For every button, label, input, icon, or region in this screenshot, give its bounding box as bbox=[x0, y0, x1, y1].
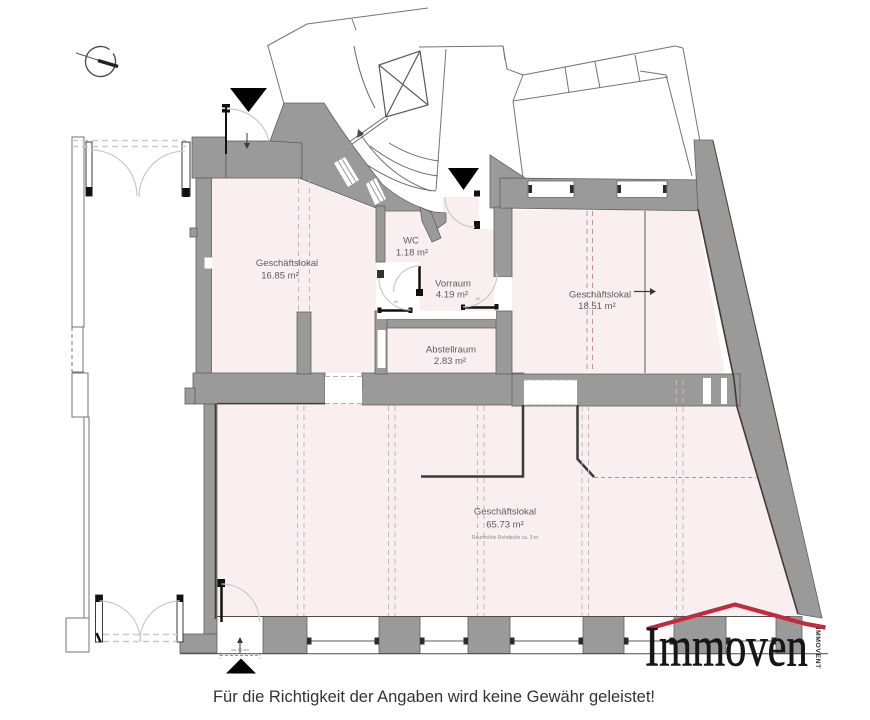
svg-text:ca. 90 cm: ca. 90 cm bbox=[231, 647, 249, 652]
svg-text:1.18 m²: 1.18 m² bbox=[396, 248, 428, 259]
svg-text:80: 80 bbox=[476, 296, 481, 301]
svg-text:80: 80 bbox=[394, 299, 399, 304]
svg-text:Geschäftslokal: Geschäftslokal bbox=[256, 258, 318, 269]
svg-text:4.19 m²: 4.19 m² bbox=[436, 290, 468, 301]
svg-text:IMMOVENT: IMMOVENT bbox=[814, 628, 821, 670]
svg-text:Geschäftslokal: Geschäftslokal bbox=[474, 507, 536, 518]
svg-text:WC: WC bbox=[403, 236, 419, 247]
svg-text:Raumhöhe Rohdecke ca. 3 m: Raumhöhe Rohdecke ca. 3 m bbox=[472, 535, 538, 541]
svg-text:Für die Richtigkeit der Angabe: Für die Richtigkeit der Angaben wird kei… bbox=[213, 688, 655, 706]
svg-text:18.51 m²: 18.51 m² bbox=[578, 301, 616, 312]
svg-text:2.83 m²: 2.83 m² bbox=[434, 356, 466, 367]
svg-text:Immoven: Immoven bbox=[645, 614, 808, 678]
svg-text:16.85 m²: 16.85 m² bbox=[261, 271, 299, 282]
svg-text:Vorraum: Vorraum bbox=[435, 279, 471, 290]
svg-text:65.73 m²: 65.73 m² bbox=[486, 520, 524, 531]
svg-text:Abstellraum: Abstellraum bbox=[426, 345, 476, 356]
svg-text:Geschäftslokal: Geschäftslokal bbox=[569, 290, 631, 301]
